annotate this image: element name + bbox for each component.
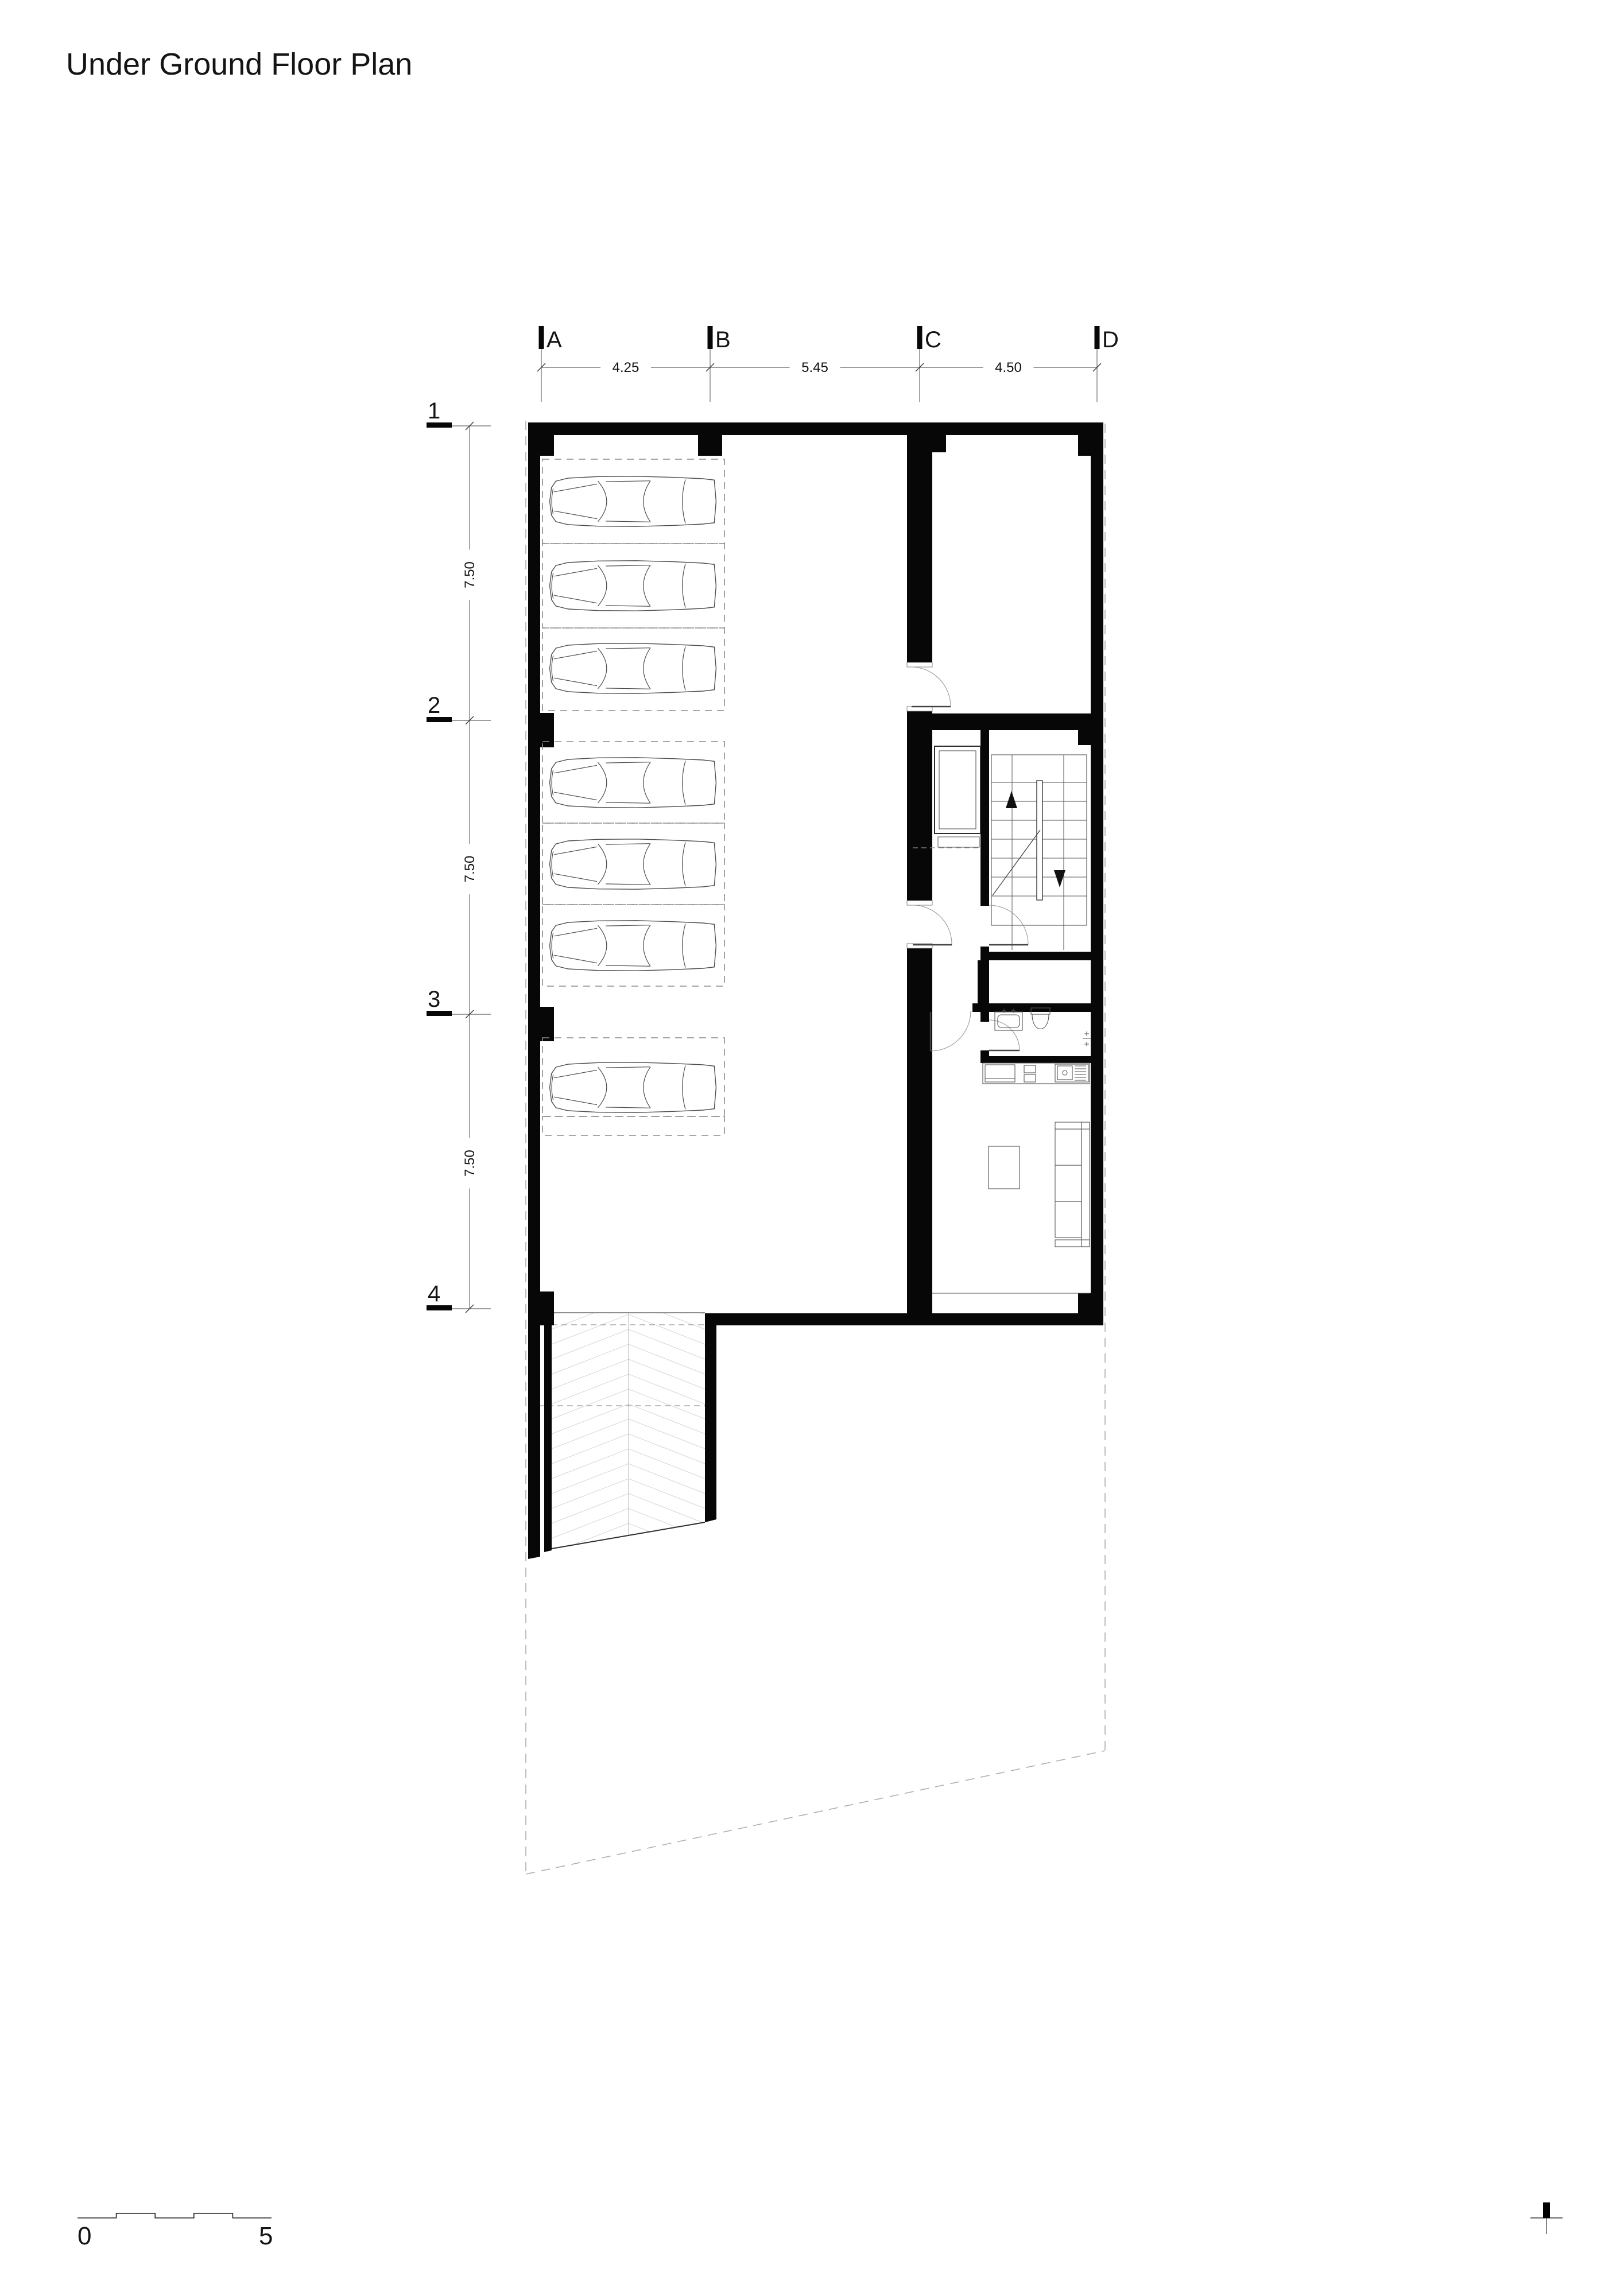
hatch-line: [552, 1374, 629, 1404]
wall: [528, 422, 540, 1559]
door-jamb: [907, 901, 932, 905]
door-arc: [931, 1011, 971, 1051]
grid-column-label: B: [715, 327, 731, 352]
hatch-line: [552, 1314, 629, 1344]
hatch-line: [629, 1285, 705, 1314]
car: [550, 921, 716, 971]
hatch-line: [629, 1344, 705, 1374]
elevator-sill: [938, 837, 979, 847]
kitchen-sink-basin: [1057, 1066, 1072, 1080]
door-jamb: [907, 662, 932, 667]
site-line-bottom: [526, 1751, 1105, 1874]
car-body: [550, 476, 716, 526]
row-dim-label: 7.50: [462, 561, 478, 588]
hatch-line: [552, 1568, 629, 1598]
wall: [528, 422, 1103, 435]
elevator-car: [935, 746, 980, 833]
grid-column-tick: [1095, 326, 1100, 349]
wall: [932, 435, 946, 452]
hatch-line: [629, 1404, 705, 1434]
car-body: [550, 839, 716, 889]
grid-column-label: D: [1102, 327, 1119, 352]
door-arc: [913, 905, 952, 945]
hatch-line: [552, 1494, 629, 1523]
car-body: [550, 1062, 716, 1112]
hatch-line: [629, 1374, 705, 1404]
wall: [1091, 422, 1103, 1325]
wall: [980, 1056, 1091, 1063]
hatch-line: [629, 1434, 705, 1464]
wall: [907, 1003, 932, 1012]
sofa-back: [1082, 1122, 1090, 1247]
grid-row-label: 4: [428, 1281, 440, 1306]
wall: [1078, 1293, 1091, 1313]
row-dim-label: 7.50: [462, 856, 478, 883]
car: [550, 561, 716, 611]
car-body: [550, 561, 716, 611]
benchmark-symbol: [1530, 2202, 1563, 2234]
grid-column-tick: [708, 326, 713, 349]
door: [989, 1020, 1020, 1050]
grid-column-tick: [539, 326, 544, 349]
hatch-line: [552, 1553, 629, 1583]
hatch-line: [629, 1314, 705, 1344]
hatch-line: [552, 1404, 629, 1434]
hatch-line: [552, 1464, 629, 1494]
grid-row-label: 2: [428, 693, 440, 718]
hatch-line: [552, 1449, 629, 1479]
wall: [978, 960, 989, 1003]
car-body: [550, 758, 716, 808]
wall: [907, 709, 932, 905]
toilet-bowl: [1032, 1014, 1049, 1029]
car: [550, 1062, 716, 1112]
column-dim-label: 5.45: [801, 360, 828, 375]
hatch-line: [552, 1419, 629, 1449]
hatch-line: [629, 1553, 705, 1583]
wall: [1078, 730, 1091, 745]
wall: [980, 952, 1091, 960]
wall: [698, 435, 722, 456]
ramp-hatch: [528, 1285, 705, 1598]
stair-break-line: [993, 830, 1040, 895]
wall: [540, 713, 554, 747]
row-dim-label: 7.50: [462, 1150, 478, 1177]
grid-column-label: A: [546, 327, 562, 352]
stair-up-arrow: [1006, 791, 1017, 808]
parking-bay: [542, 1116, 724, 1135]
stove-burner: [1024, 1065, 1036, 1073]
hatch-line: [629, 1419, 705, 1449]
sink-drain: [1063, 1071, 1067, 1075]
scale-bar-line: [77, 2213, 272, 2218]
sofa-cushion: [1055, 1129, 1082, 1165]
sofa-cushion: [1055, 1201, 1082, 1238]
grid-row-label: 1: [428, 398, 440, 424]
hatch-line: [552, 1359, 629, 1389]
column-dim-label: 4.25: [613, 360, 639, 375]
wall: [907, 713, 1103, 730]
sofa-armrest: [1055, 1122, 1090, 1129]
kitchen-sink-unit: [1055, 1064, 1088, 1082]
hatch-line: [552, 1285, 629, 1314]
column-dim-label: 4.50: [995, 360, 1022, 375]
door: [907, 901, 952, 948]
door-arc: [989, 1020, 1020, 1050]
grid-row-tick: [427, 1011, 452, 1016]
wall: [540, 435, 554, 456]
hatch-line: [629, 1359, 705, 1389]
site-boundary: [526, 421, 1105, 1874]
sofa-cushion: [1055, 1165, 1082, 1201]
wall: [705, 1313, 716, 1522]
floor-plan-drawing: Under Ground Floor Plan ABCD4.255.454.50…: [0, 0, 1624, 2296]
hatch-line: [629, 1494, 705, 1523]
staircase: [991, 755, 1087, 950]
hatch-line: [552, 1434, 629, 1464]
bath-sink-inner: [998, 1015, 1020, 1027]
car: [550, 839, 716, 889]
wall: [980, 730, 989, 906]
page-title: Under Ground Floor Plan: [66, 47, 412, 82]
hatch-line: [629, 1449, 705, 1479]
hatch-line: [552, 1389, 629, 1419]
car: [550, 476, 716, 526]
scale-end-label: 5: [259, 2222, 273, 2250]
wall: [907, 947, 932, 1313]
grid-row-label: 3: [428, 987, 440, 1012]
benchmark-flag: [1543, 2202, 1550, 2218]
door: [907, 662, 951, 711]
table: [989, 1146, 1020, 1189]
hatch-line: [552, 1538, 629, 1568]
car: [550, 758, 716, 808]
kitchen-cabinet: [985, 1065, 1015, 1082]
stove-burner: [1024, 1075, 1036, 1082]
hatch-line: [629, 1329, 705, 1359]
kitchen-counter: [983, 1063, 1090, 1084]
stair-divider: [1037, 781, 1042, 900]
sofa-armrest: [1055, 1240, 1090, 1247]
car: [550, 643, 716, 693]
wall: [540, 1007, 554, 1041]
hatch-line: [629, 1568, 705, 1598]
hatch-line: [552, 1508, 629, 1538]
grid-row-tick: [427, 717, 452, 722]
wall: [980, 1012, 989, 1022]
wall: [544, 1314, 552, 1552]
car-body: [550, 921, 716, 971]
grid-column-tick: [917, 326, 923, 349]
scale-bar: 05: [77, 2213, 273, 2250]
hatch-line: [629, 1479, 705, 1508]
grid-row-tick: [427, 422, 452, 428]
scale-start-label: 0: [77, 2222, 91, 2250]
hatch-line: [629, 1464, 705, 1494]
wall: [907, 422, 932, 664]
hatch-line: [629, 1523, 705, 1553]
grid-row-tick: [427, 1305, 452, 1310]
door: [931, 1011, 971, 1051]
door-arc: [912, 667, 951, 707]
hatch-line: [629, 1389, 705, 1419]
hatch-line: [552, 1344, 629, 1374]
car-body: [550, 643, 716, 693]
wall: [705, 1313, 1103, 1325]
hatch-line: [552, 1329, 629, 1359]
hatch-line: [552, 1479, 629, 1508]
grid-column-label: C: [925, 327, 941, 352]
parked-cars: [550, 476, 716, 1112]
hatch-line: [629, 1538, 705, 1568]
hatch-line: [552, 1523, 629, 1553]
